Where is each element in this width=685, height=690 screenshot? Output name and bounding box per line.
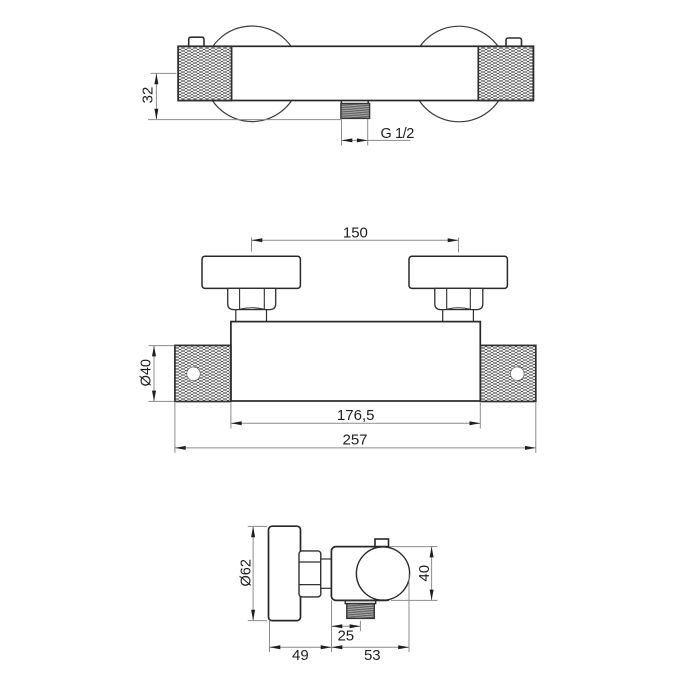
svg-text:53: 53 <box>364 647 381 664</box>
svg-text:40: 40 <box>416 565 433 582</box>
svg-text:Ø40: Ø40 <box>139 359 155 386</box>
svg-text:Ø62: Ø62 <box>238 559 254 586</box>
svg-text:49: 49 <box>292 647 309 664</box>
svg-text:32: 32 <box>139 87 156 104</box>
svg-text:176,5: 176,5 <box>337 407 375 424</box>
svg-text:257: 257 <box>342 432 367 449</box>
svg-text:150: 150 <box>343 224 368 241</box>
svg-text:25: 25 <box>337 628 354 645</box>
svg-text:G 1/2: G 1/2 <box>381 126 415 142</box>
